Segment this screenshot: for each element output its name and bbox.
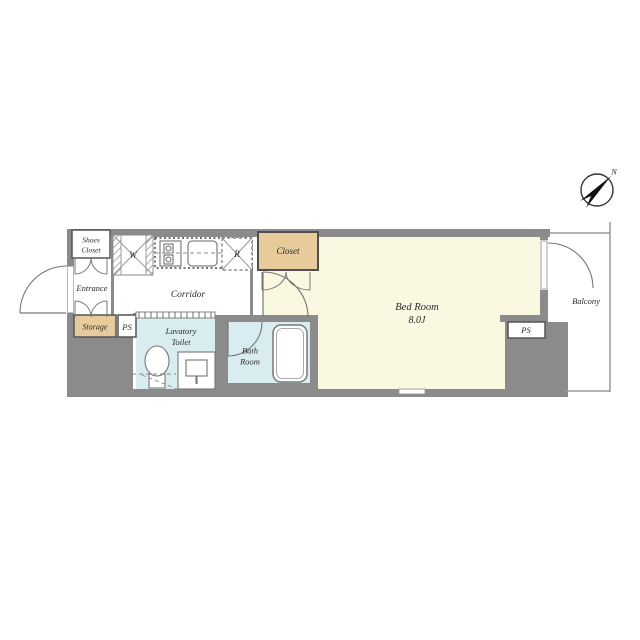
floor-plan-drawing (0, 0, 640, 640)
compass-icon (580, 174, 613, 208)
bathroom-label: Bath Room (240, 346, 260, 367)
wall-block-bottom-left (74, 336, 133, 389)
closet-label: Closet (276, 246, 299, 256)
bottom-wall-vent (399, 389, 425, 394)
storage-label: Storage (83, 323, 108, 332)
wall-lavatory-bath (215, 315, 228, 389)
bathtub (273, 325, 307, 382)
lavatory-label: Lavatory Toilet (166, 326, 197, 348)
shoes-closet-door-arc (91, 258, 107, 274)
balcony-door-leaf (541, 241, 547, 289)
pipe-space-left-label: PS (122, 322, 131, 332)
fridge-label: R (234, 249, 240, 259)
shoes-closet-door-arc (75, 258, 91, 274)
lavatory-sliding-door (136, 312, 215, 318)
wall-bath-bottom (228, 383, 310, 389)
toilet (145, 346, 169, 376)
entrance-label: Entrance (76, 283, 107, 293)
kitchen-sink (188, 241, 217, 266)
corridor-label: Corridor (171, 290, 205, 300)
washer-label: W (129, 250, 137, 260)
wall-bath-right (310, 315, 318, 389)
bedroom-name: Bed Room (395, 301, 438, 314)
floor-plan: Shoes Closet Entrance W Corridor R Close… (0, 0, 640, 640)
entrance-door-frame (68, 267, 74, 313)
washer-hatch-left (113, 235, 121, 275)
front-door-arc (20, 266, 67, 313)
wall-bath-top (215, 315, 318, 322)
wall-shaft-top (500, 315, 548, 322)
shoes-closet-label: Shoes Closet (81, 236, 100, 255)
bedroom-size: 8.0J (395, 314, 438, 327)
balcony-door-arc (548, 243, 593, 288)
pipe-space-right-label: PS (521, 325, 530, 335)
balcony-label: Balcony (572, 296, 600, 306)
wall-bottom (67, 389, 568, 397)
bedroom-label: Bed Room 8.0J (395, 301, 438, 327)
wall-corridor-end (250, 266, 253, 317)
compass-north-label: N (611, 168, 616, 177)
